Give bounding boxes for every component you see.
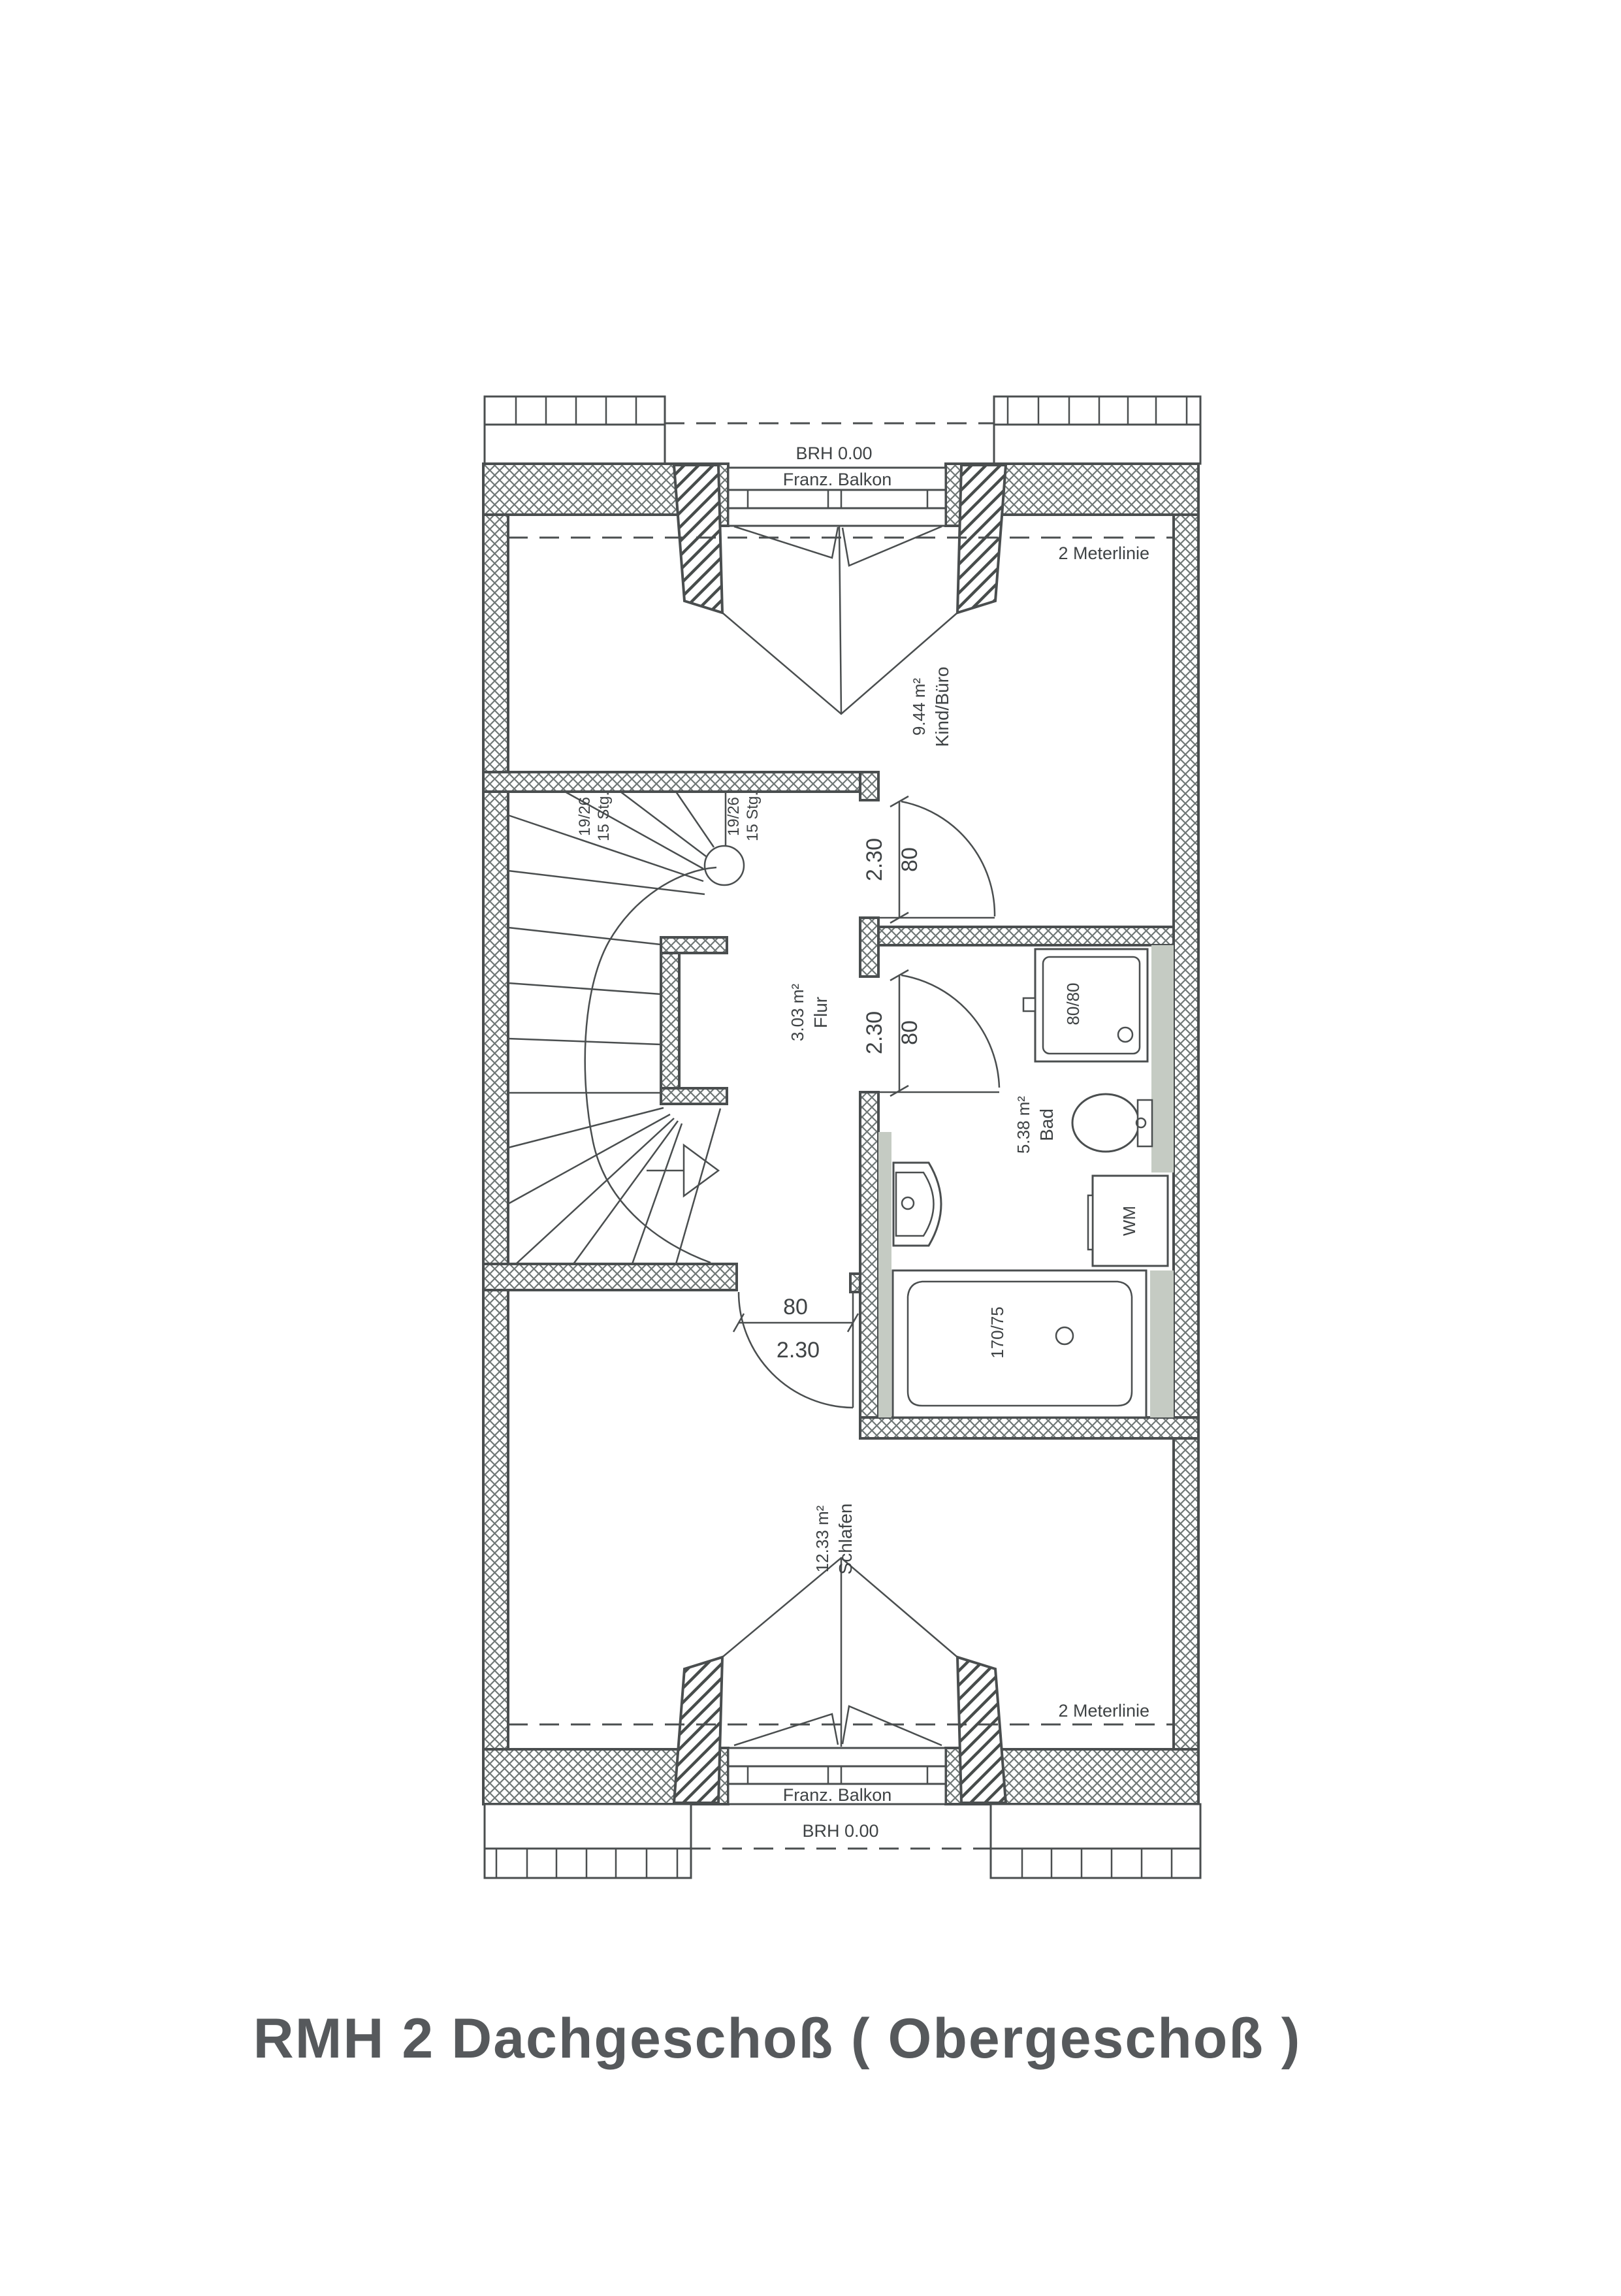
svg-text:2.30: 2.30 <box>777 1338 820 1363</box>
shower-label: 80/80 <box>1063 982 1083 1025</box>
svg-text:80: 80 <box>897 847 922 872</box>
bad-wall-south <box>860 1417 1198 1438</box>
svg-text:15 Stg.: 15 Stg. <box>595 792 613 841</box>
dormer-cheek-bottom-left <box>674 1657 722 1803</box>
toilet <box>1072 1094 1152 1152</box>
svg-text:Flur: Flur <box>810 997 831 1028</box>
svg-text:2.30: 2.30 <box>862 838 887 881</box>
flur-east-pier <box>860 918 878 977</box>
svg-text:19/26: 19/26 <box>576 797 594 836</box>
door-kind-dimension: 80 2.30 <box>862 796 922 923</box>
stair-wall-south <box>483 1264 737 1290</box>
svg-text:3.03 m²: 3.03 m² <box>788 984 807 1041</box>
door-schlafen-jamb <box>850 1274 860 1292</box>
dormer-arrow-bottom <box>722 1558 957 1747</box>
french-balcony-top: Franz. Balkon <box>728 468 946 526</box>
stair-label-flight2: 15 Stg. 19/26 <box>725 792 762 841</box>
wall-top-right <box>983 464 1198 515</box>
svg-text:80: 80 <box>783 1295 808 1319</box>
meterline-label-bottom: 2 Meterlinie <box>1058 1701 1149 1721</box>
room-label-kind: Kind/Büro 9.44 m² <box>909 667 952 747</box>
bathtub-label: 170/75 <box>987 1306 1007 1359</box>
svg-text:Bad: Bad <box>1036 1108 1057 1141</box>
window-threshold-top <box>728 508 946 526</box>
balcony-railing-top-right <box>994 396 1200 464</box>
wall-top-left <box>483 464 691 515</box>
stair-walk-line <box>585 867 716 1263</box>
svg-text:9.44 m²: 9.44 m² <box>909 678 929 736</box>
svg-text:5.38 m²: 5.38 m² <box>1014 1096 1033 1154</box>
stair-newel-post <box>705 846 744 885</box>
dormer-cheek-bottom-right <box>957 1657 1006 1803</box>
svg-text:2.30: 2.30 <box>862 1011 887 1054</box>
bathtub: 170/75 <box>893 1270 1146 1417</box>
door-kind: 80 2.30 <box>862 796 995 923</box>
window-threshold-bottom <box>728 1748 946 1766</box>
svg-text:Kind/Büro: Kind/Büro <box>932 667 952 747</box>
door-schlafen-dimension: 80 2.30 <box>733 1295 858 1363</box>
washing-machine-label: WM <box>1119 1206 1139 1236</box>
stair-wall-north <box>483 772 860 792</box>
room-label-bad: Bad 5.38 m² <box>1014 1096 1057 1154</box>
drawing-title: RMH 2 Dachgeschoß ( Obergeschoß ) <box>253 2007 1302 2070</box>
wall-bottom-left <box>483 1749 691 1804</box>
two-meter-line-bottom: 2 Meterlinie <box>508 1701 1172 1724</box>
bad-wall-north <box>878 927 1174 945</box>
bad-wall-west <box>860 1092 878 1438</box>
door-kind-jamb <box>860 772 878 800</box>
wall-bottom-right <box>983 1749 1198 1804</box>
room-label-flur: Flur 3.03 m² <box>788 984 831 1041</box>
svg-text:12.33 m²: 12.33 m² <box>812 1505 832 1572</box>
door-bad: 80 2.30 <box>862 970 999 1096</box>
stair-direction-arrow <box>684 1145 718 1196</box>
balcony-railing-bottom-left <box>485 1804 691 1878</box>
window-sash-bottom <box>728 1766 946 1784</box>
door-schlafen: 80 2.30 <box>733 1292 858 1408</box>
balcony-label-top: Franz. Balkon <box>783 470 892 489</box>
wall-left <box>483 464 508 1804</box>
dormer-cheek-top-left <box>674 465 722 613</box>
shower: 80/80 <box>1023 949 1148 1061</box>
washbasin <box>893 1163 941 1246</box>
svg-text:Schlafen: Schlafen <box>835 1504 856 1575</box>
wall-right <box>1174 464 1198 1804</box>
svg-text:15 Stg.: 15 Stg. <box>744 792 762 841</box>
stair-core-wall <box>661 937 727 1104</box>
stair-label-flight1: 15 Stg. 19/26 <box>576 792 613 841</box>
balcony-railing-top-left <box>485 396 665 464</box>
brh-label-top: BRH 0.00 <box>795 444 872 463</box>
staircase: 15 Stg. 19/26 15 Stg. 19/26 <box>508 792 762 1264</box>
svg-text:19/26: 19/26 <box>725 797 743 836</box>
french-balcony-bottom: Franz. Balkon <box>728 1748 946 1805</box>
meterline-label-top: 2 Meterlinie <box>1058 543 1149 563</box>
door-bad-dimension: 80 2.30 <box>862 970 922 1096</box>
svg-text:80: 80 <box>897 1020 922 1045</box>
washing-machine: WM <box>1088 1176 1168 1266</box>
floor-plan-drawing: BRH 0.00 Franz. Balkon <box>0 0 1621 2293</box>
balcony-label-bottom: Franz. Balkon <box>783 1785 892 1805</box>
balcony-railing-bottom-right <box>991 1804 1200 1878</box>
window-sash-top <box>728 490 946 508</box>
floor-plan-page: BRH 0.00 Franz. Balkon <box>0 0 1621 2293</box>
dormer-cheek-top-right <box>957 465 1006 613</box>
brh-label-bottom: BRH 0.00 <box>802 1821 878 1841</box>
